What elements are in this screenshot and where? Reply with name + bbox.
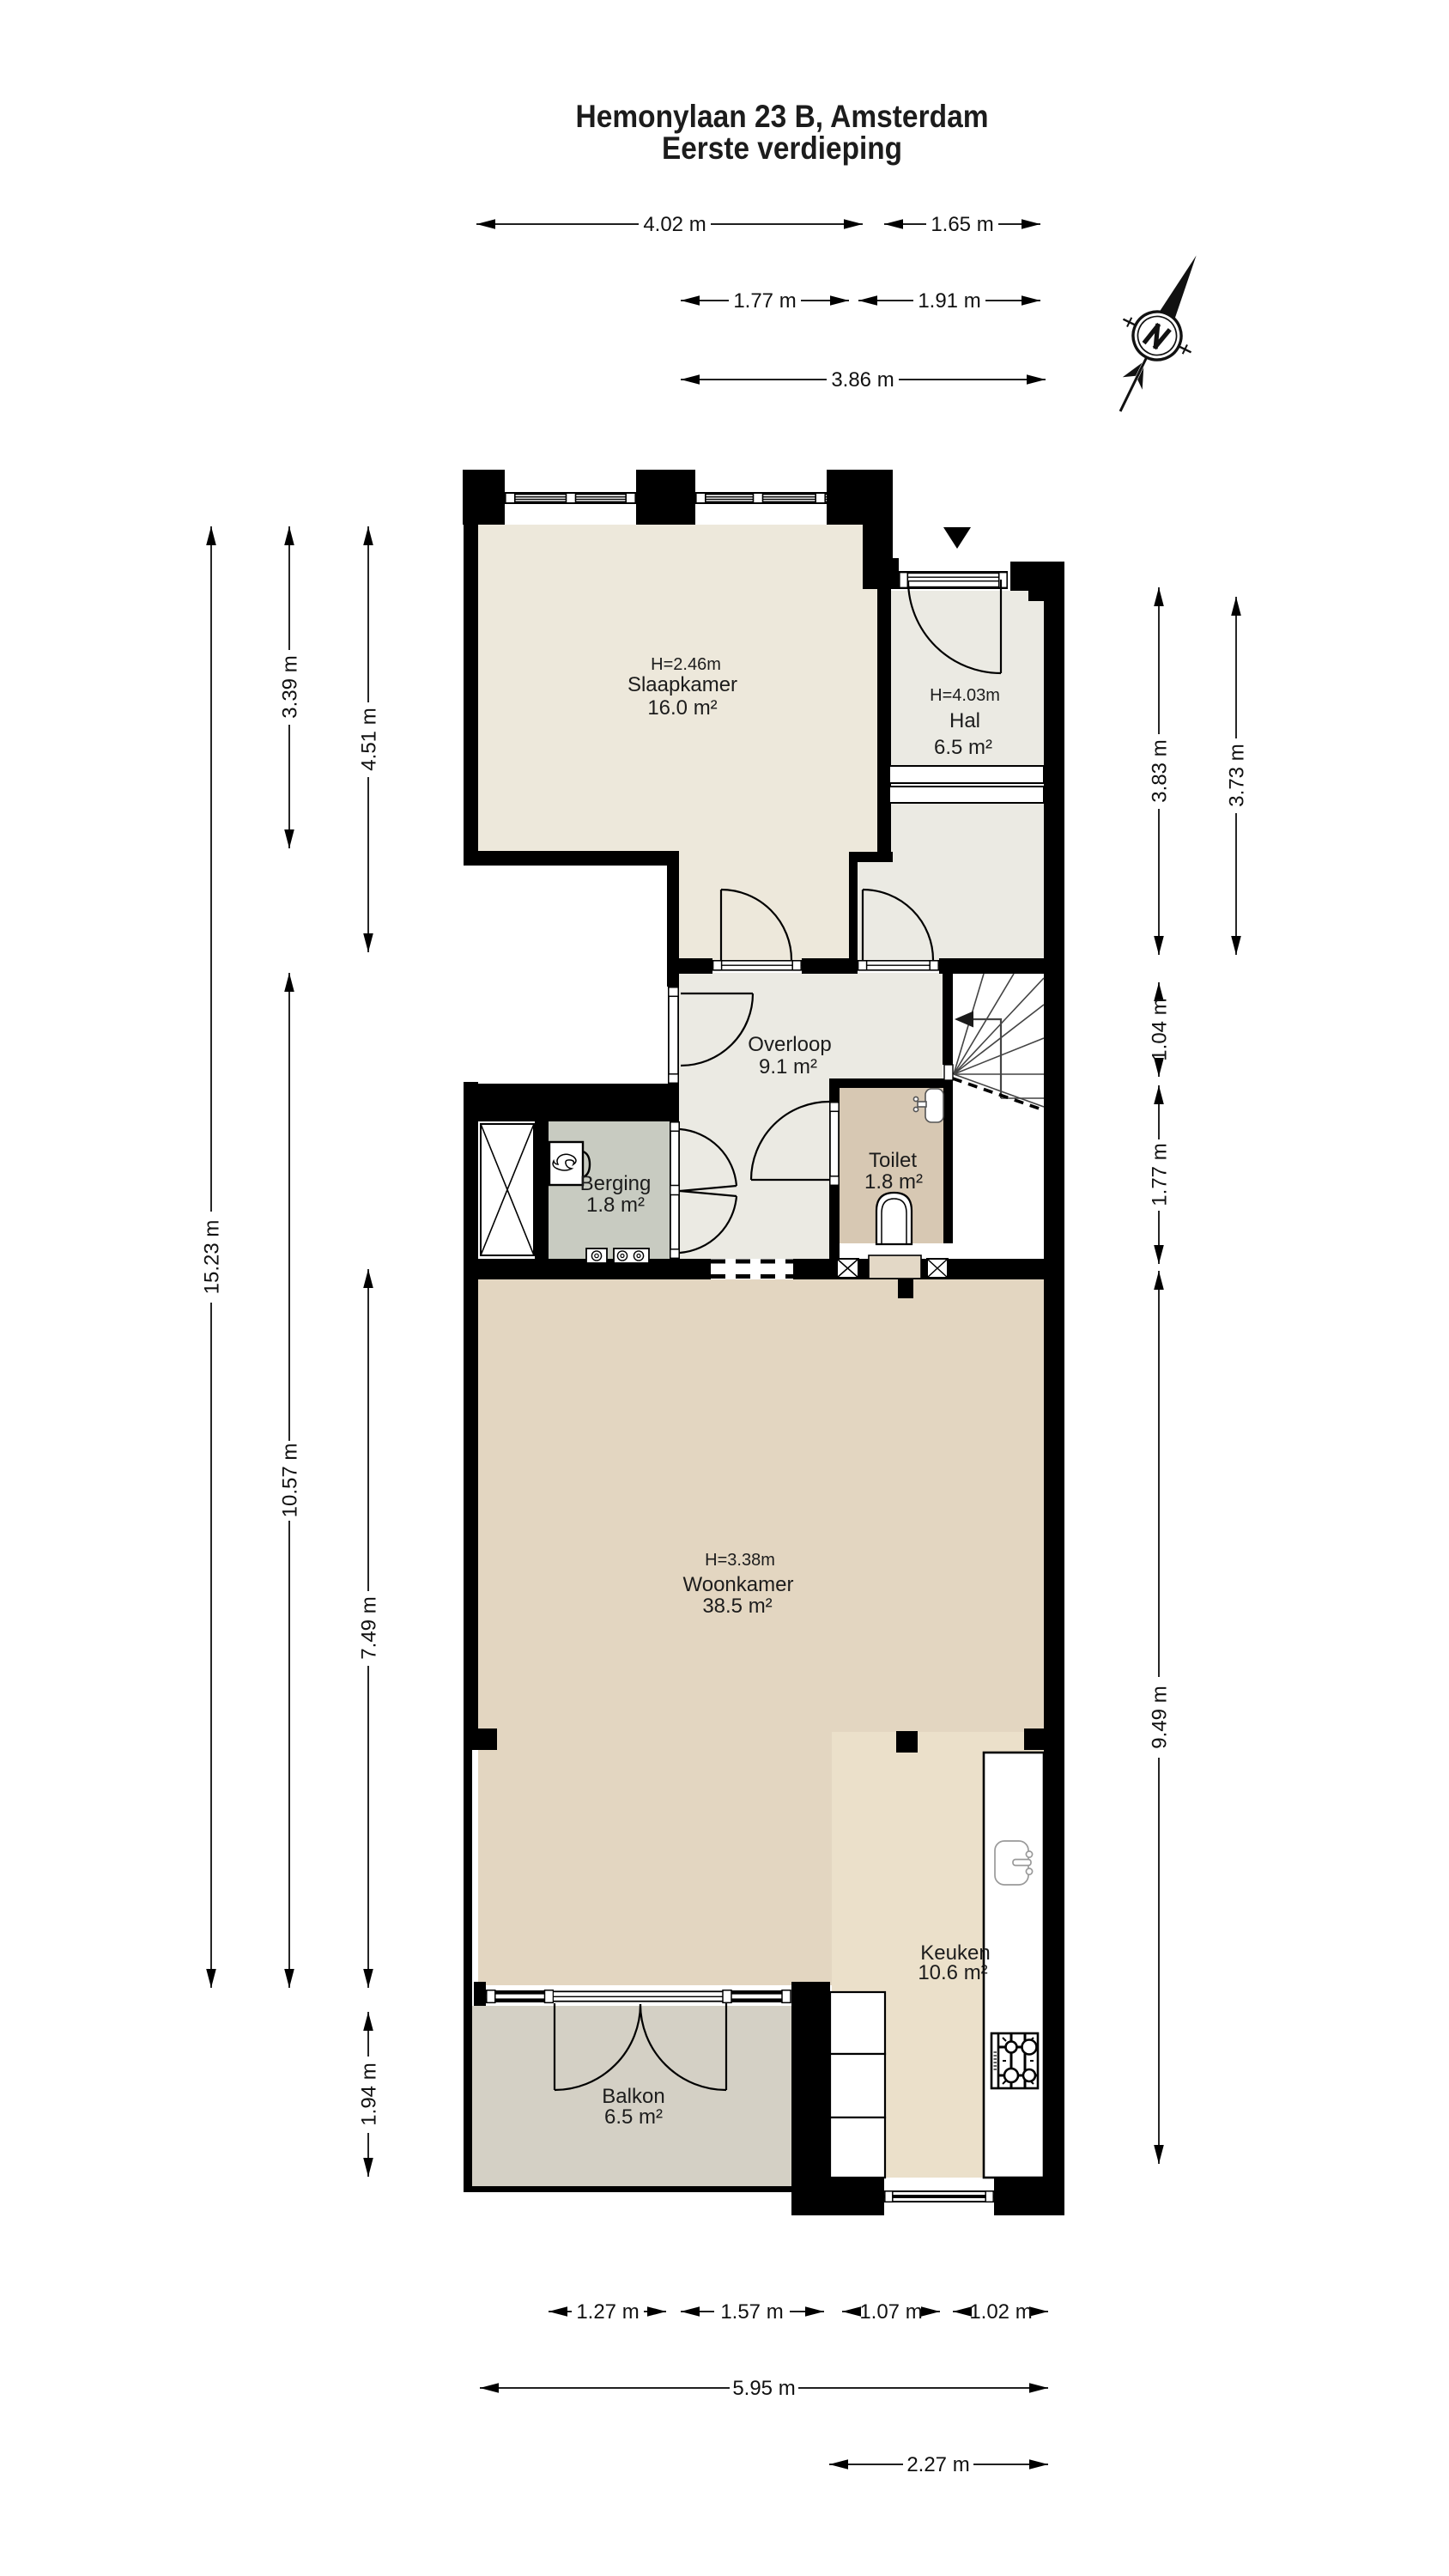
svg-text:Overloop: Overloop <box>748 1033 831 1056</box>
svg-text:3.39 m: 3.39 m <box>279 655 302 718</box>
svg-text:Slaapkamer: Slaapkamer <box>627 673 737 696</box>
svg-text:9.49 m: 9.49 m <box>1149 1686 1172 1748</box>
svg-text:H=2.46m: H=2.46m <box>651 655 721 674</box>
svg-text:H=4.03m: H=4.03m <box>930 686 1000 705</box>
svg-text:3.86 m: 3.86 m <box>831 368 894 392</box>
svg-text:1.02 m: 1.02 m <box>969 2300 1032 2324</box>
svg-text:4.51 m: 4.51 m <box>358 708 381 770</box>
svg-text:1.77 m: 1.77 m <box>733 289 796 313</box>
svg-text:16.0 m²: 16.0 m² <box>647 696 717 720</box>
svg-text:1.27 m: 1.27 m <box>576 2300 639 2324</box>
svg-text:Balkon: Balkon <box>602 2085 664 2108</box>
svg-text:6.5 m²: 6.5 m² <box>934 736 992 759</box>
svg-text:Berging: Berging <box>580 1172 652 1195</box>
svg-text:1.8 m²: 1.8 m² <box>586 1194 645 1217</box>
svg-text:15.23 m: 15.23 m <box>201 1220 224 1295</box>
svg-text:1.77 m: 1.77 m <box>1149 1143 1172 1206</box>
svg-text:1.91 m: 1.91 m <box>918 289 980 313</box>
svg-text:2.27 m: 2.27 m <box>906 2453 969 2476</box>
svg-text:4.02 m: 4.02 m <box>643 213 706 236</box>
svg-text:1.04 m: 1.04 m <box>1149 998 1172 1060</box>
svg-text:7.49 m: 7.49 m <box>358 1596 381 1659</box>
svg-text:Woonkamer: Woonkamer <box>683 1573 794 1596</box>
svg-text:Eerste verdieping: Eerste verdieping <box>662 131 902 166</box>
svg-text:5.95 m: 5.95 m <box>732 2377 795 2400</box>
svg-text:Toilet: Toilet <box>869 1149 917 1172</box>
svg-text:H=3.38m: H=3.38m <box>705 1551 775 1570</box>
svg-text:3.73 m: 3.73 m <box>1226 744 1249 806</box>
svg-text:1.57 m: 1.57 m <box>720 2300 783 2324</box>
svg-text:Hemonylaan 23 B, Amsterdam: Hemonylaan 23 B, Amsterdam <box>576 99 989 134</box>
svg-text:6.5 m²: 6.5 m² <box>604 2105 663 2129</box>
svg-text:3.83 m: 3.83 m <box>1149 739 1172 802</box>
svg-text:1.94 m: 1.94 m <box>358 2063 381 2125</box>
svg-text:10.57 m: 10.57 m <box>279 1443 302 1518</box>
svg-text:9.1 m²: 9.1 m² <box>759 1055 817 1078</box>
svg-text:1.07 m: 1.07 m <box>859 2300 922 2324</box>
svg-text:10.6 m²: 10.6 m² <box>918 1961 987 1984</box>
svg-text:1.65 m: 1.65 m <box>931 213 993 236</box>
svg-text:38.5 m²: 38.5 m² <box>702 1595 772 1618</box>
svg-text:Hal: Hal <box>949 709 980 732</box>
svg-text:1.8 m²: 1.8 m² <box>864 1170 923 1194</box>
